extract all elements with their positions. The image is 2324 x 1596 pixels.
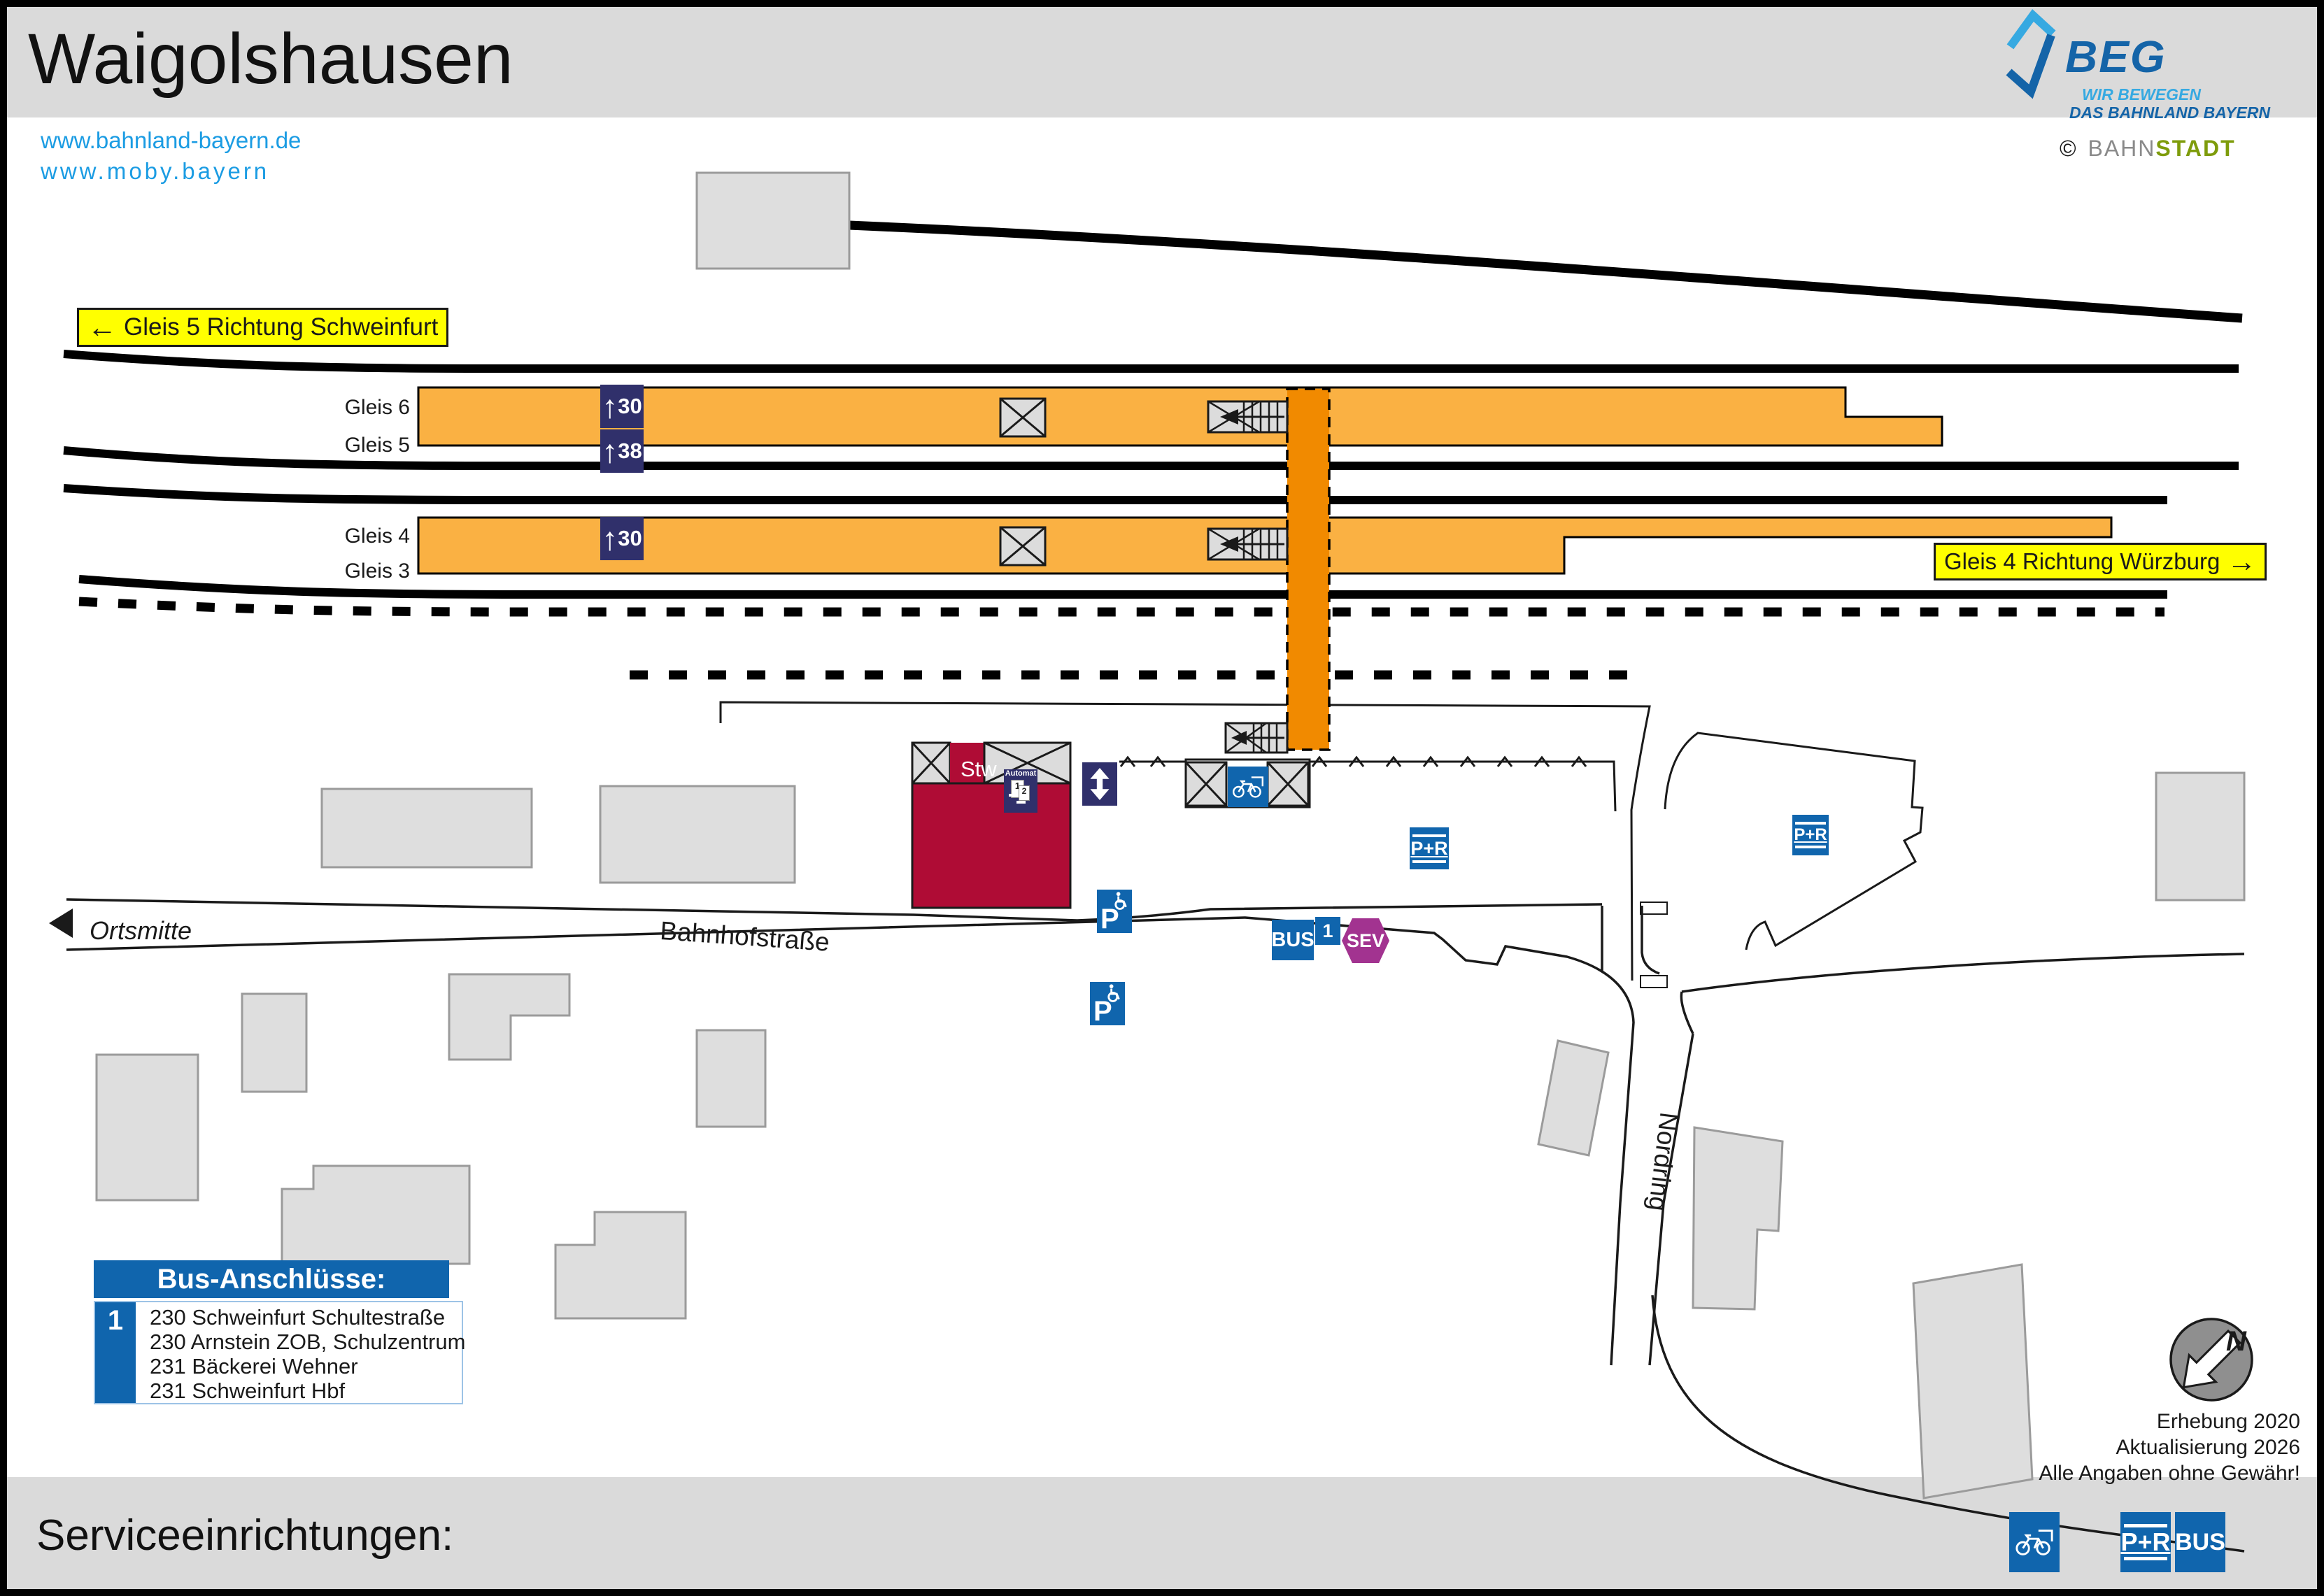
stairs-street-level [1226,723,1287,753]
disabled-parking-sign-2: P [1090,982,1125,1025]
direction-sign-schweinfurt: ← Gleis 5 Richtung Schweinfurt [77,308,448,347]
track-siding-top [849,225,2242,318]
direction-sign-wuerzburg: Gleis 4 Richtung Würzburg → [1934,543,2267,580]
bike-parking-sign [1228,767,1268,807]
link-bahnland-bayern[interactable]: www.bahnland-bayern.de [41,127,301,154]
park-and-ride-sign-1: P+R [1410,827,1449,869]
up-arrow-icon: ↑ [602,435,618,467]
track-gleis5 [64,354,2239,369]
building [555,1212,686,1318]
wheelchair-icon [1105,984,1124,1002]
arrow-right-icon: → [2227,545,2256,578]
park-and-ride-sign-2: P+R [1792,815,1829,855]
building [697,1030,765,1127]
building [242,994,306,1092]
shelters [1000,399,1045,565]
legend-park-and-ride: P+R [2120,1512,2171,1572]
wheelchair-icon [1112,892,1131,910]
track-label-gleis-6: Gleis 6 [326,396,410,420]
up-arrow-icon: ↑ [602,390,618,422]
link-moby-bayern[interactable]: www.moby.bayern [41,158,301,185]
bus-line-entry: 230 Schweinfurt Schultestraße [150,1305,465,1330]
bus-connections-box: 1 230 Schweinfurt Schultestraße 230 Arns… [94,1301,463,1404]
driveway-stub-2 [1641,976,1667,988]
station-map-page: Waigolshausen www.bahnland-bayern.de www… [0,0,2324,1596]
beg-tagline-1: WIR BEWEGEN [2082,85,2201,104]
bus-stop-number-badge: 1 [1315,917,1340,945]
sign-rule [1412,860,1446,863]
slot-mark [1009,794,1015,797]
building [697,173,849,269]
ticket-machine-glyph: 1 2 [1008,778,1033,806]
stairs-platform-5-6 [1208,401,1287,432]
bus-line-entry: 231 Schweinfurt Hbf [150,1378,465,1403]
bus-line-entry: 230 Arnstein ZOB, Schulzentrum [150,1330,465,1354]
bicycle-icon [2014,1527,2055,1558]
bahnhofstrasse-northeast-edge [1682,954,2244,992]
bicycle-icon [1231,774,1265,799]
forecourt-boundary [721,702,1650,981]
bahnhofstrasse-north-edge [66,899,1602,920]
sign-rule [1795,822,1827,825]
bus-connections-header: Bus-Anschlüsse: [94,1260,449,1298]
platform-height-sign-30-b: ↑30 [600,517,644,560]
shelter-platform-5-6 [1000,399,1045,436]
beg-wordmark: BEG [2065,31,2167,83]
beg-tagline-2: DAS BAHNLAND BAYERN [2069,104,2270,122]
bus-stop-sign: BUS [1272,920,1314,960]
street-label-ortsmitte: Ortsmitte [90,916,192,946]
bus-stop-number-column: 1 [95,1302,136,1403]
station-building-main [912,783,1070,908]
underpass-access-icon [1082,762,1117,806]
signal-box-label: Stw [961,757,997,782]
building [2156,773,2244,900]
platform-height-sign-30-a: ↑30 [600,385,644,428]
footer-label: Serviceeinrichtungen: [36,1511,453,1560]
sign-rule [1412,834,1446,837]
track-dashed-long [79,601,2164,612]
track-label-gleis-3: Gleis 3 [326,560,410,583]
page-title: Waigolshausen [28,18,513,100]
underpass [1287,389,1329,750]
building [97,1055,198,1200]
sign-rule [2124,1557,2167,1560]
shelter-platform-3-4 [1000,527,1045,565]
copyright-icon: © [2060,136,2076,161]
bahnhofstrasse-south-edge [66,918,1634,1365]
disabled-parking-sign-1: P [1097,890,1132,933]
survey-notes: Erhebung 2020 Aktualisierung 2026 Alle A… [2039,1409,2300,1486]
junction-curbs [1602,906,1659,974]
sign-rule [1795,846,1827,848]
driveway-stub-1 [1641,902,1667,914]
stairs-platform-3-4 [1208,529,1287,560]
ticket-machine-icon: Automat 1 2 [1004,769,1037,813]
bus-line-entry: 231 Bäckerei Wehner [150,1354,465,1378]
building [1538,1041,1608,1155]
compass-north-label: N [2226,1326,2246,1358]
up-down-arrow-icon [1089,767,1111,801]
arrow-left-icon [49,909,73,938]
building [1693,1127,1783,1309]
map-credit: © BAHNSTADT [2060,136,2236,162]
platform-height-sign-38: ↑38 [600,429,644,473]
platform-5-6 [418,387,1942,446]
stairs-icons [1208,401,1287,753]
slot-mark [1016,801,1026,804]
legend-bus: BUS [2175,1512,2225,1572]
track-label-gleis-5: Gleis 5 [326,434,410,457]
legend-bike-parking [2009,1512,2060,1572]
building [600,786,795,883]
track-label-gleis-4: Gleis 4 [326,525,410,548]
building [282,1166,469,1264]
building [1913,1264,2032,1498]
building [449,974,569,1060]
arrow-left-icon: ← [87,311,117,344]
up-arrow-icon: ↑ [602,522,618,555]
building [322,789,532,867]
beg-logo-icon [2012,15,2050,92]
track-middle-2 [64,488,2167,500]
